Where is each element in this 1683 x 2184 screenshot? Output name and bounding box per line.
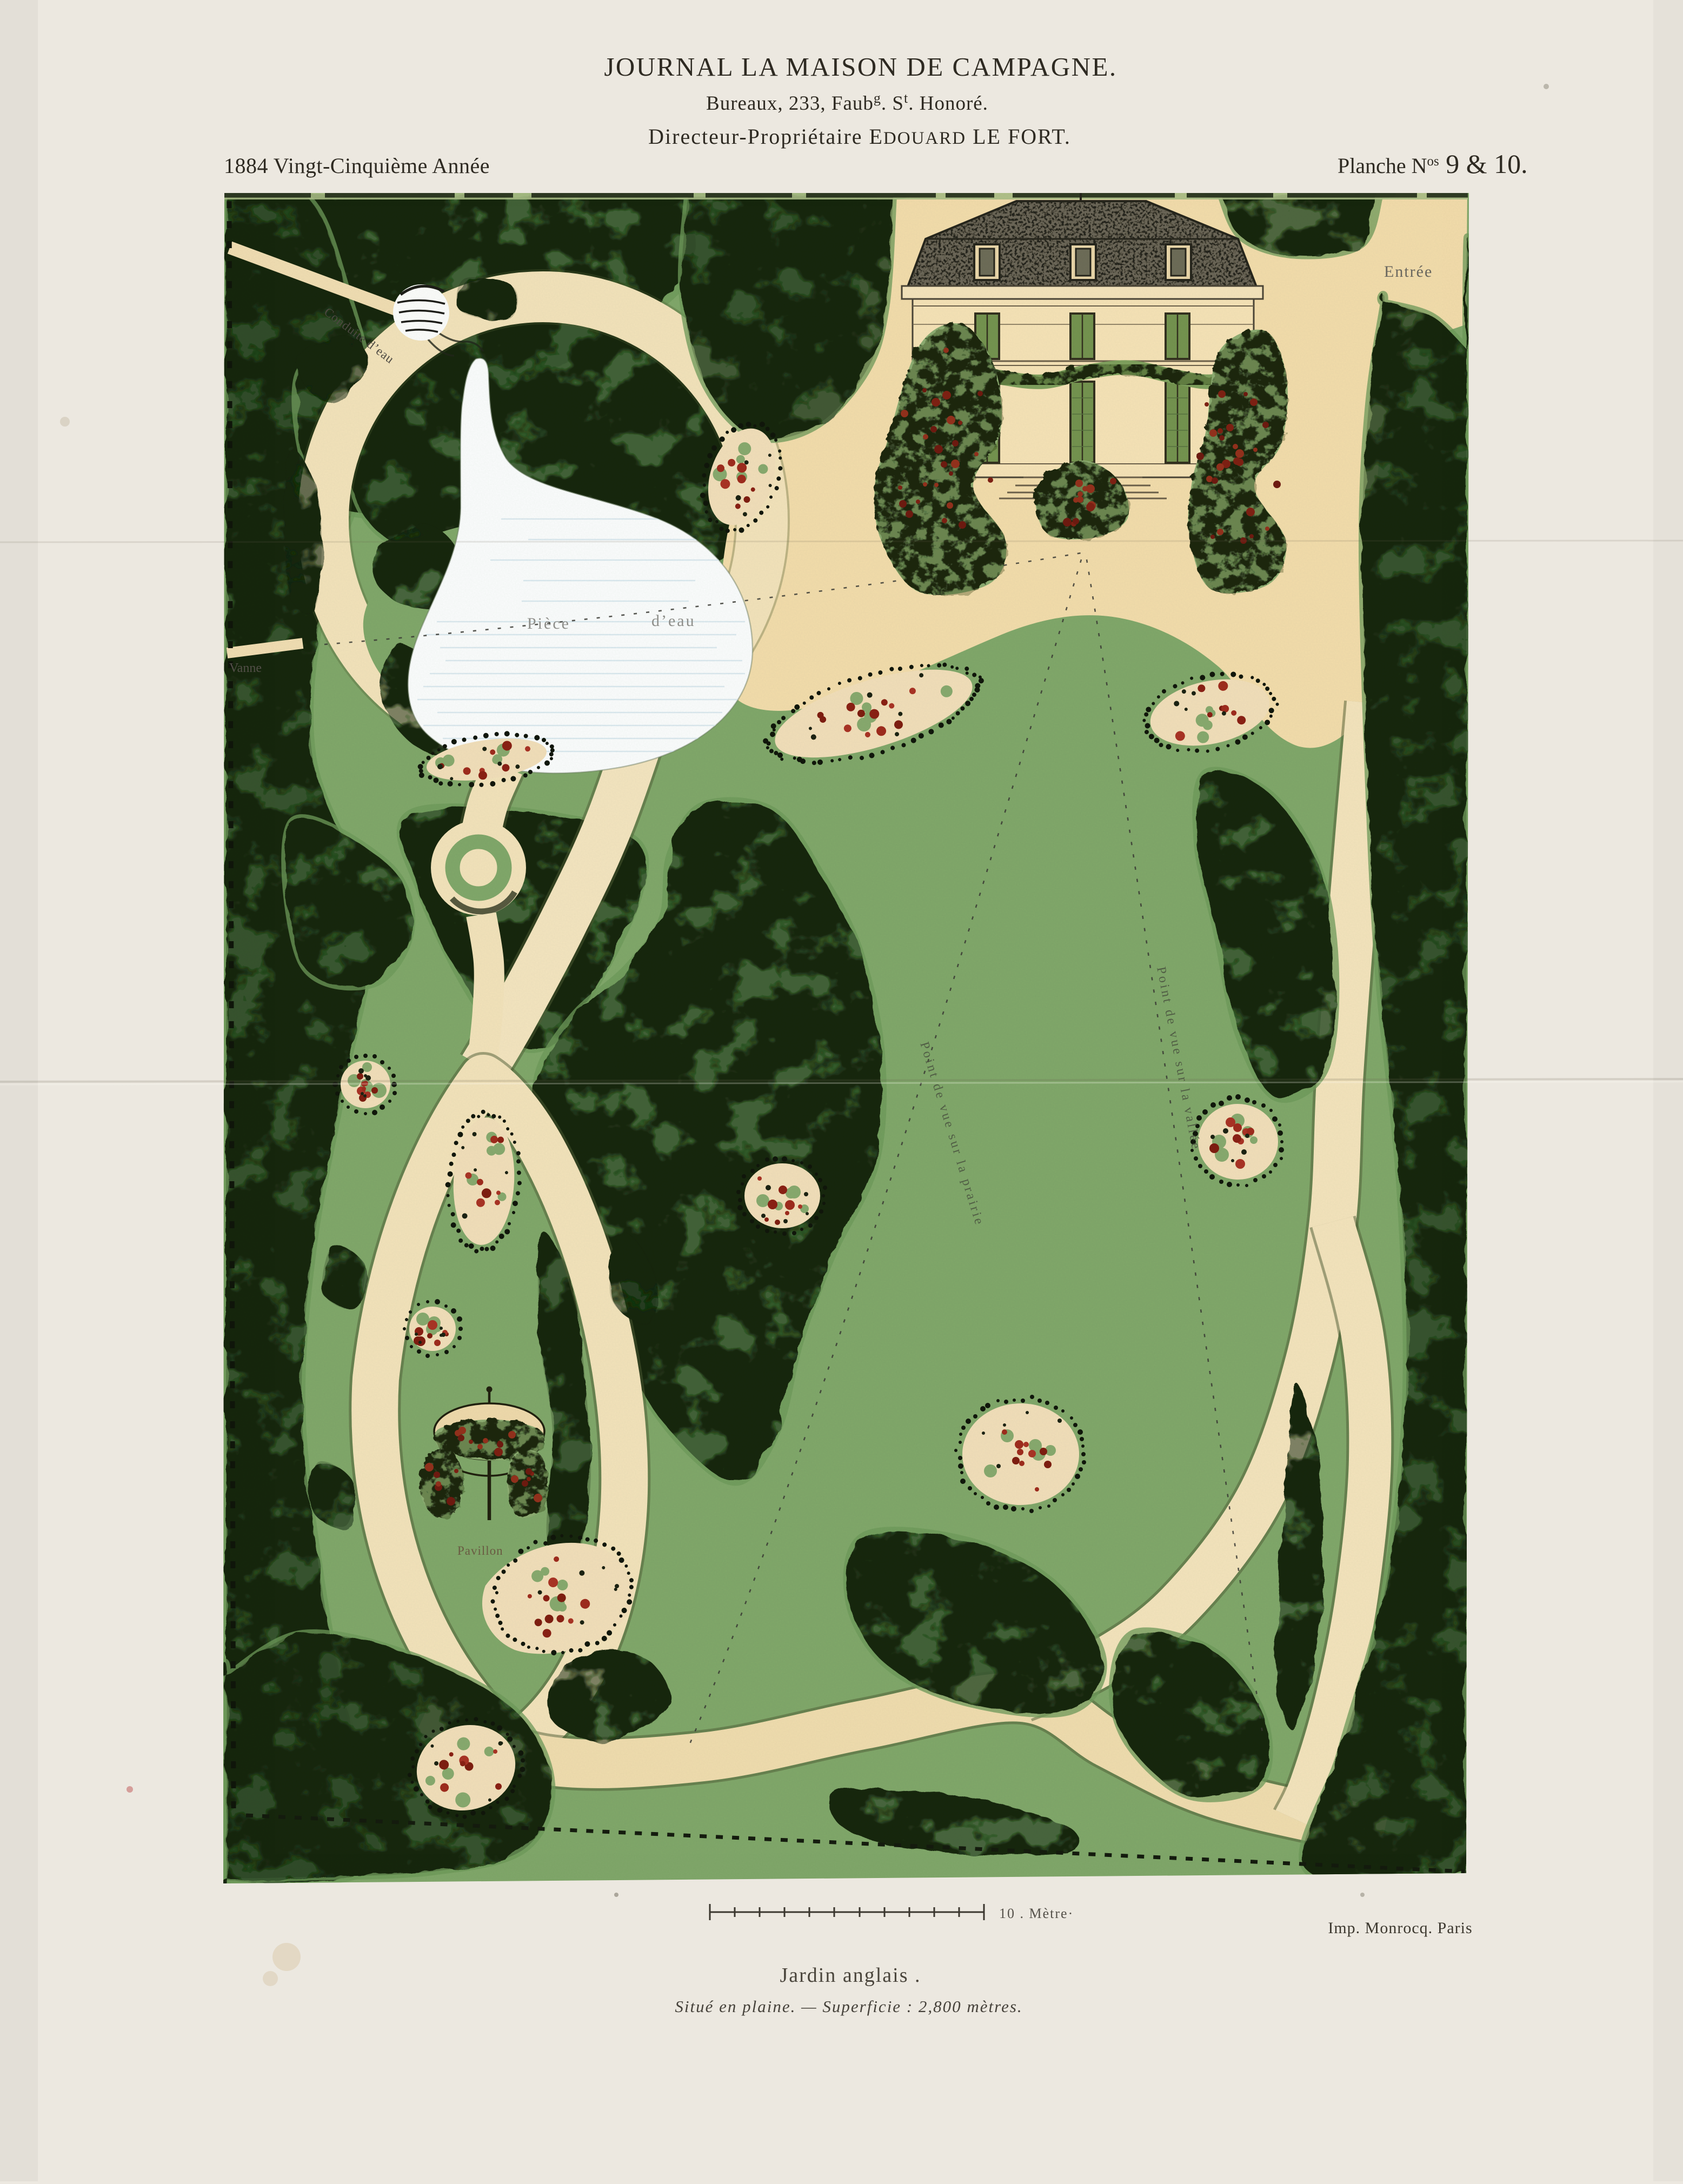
svg-text:JOURNAL LA MAISON DE CAMPAGNE.: JOURNAL LA MAISON DE CAMPAGNE. <box>604 52 1117 82</box>
svg-text:Jardin anglais .: Jardin anglais . <box>780 1964 921 1987</box>
svg-text:1884 Vingt-Cinquième Année: 1884 Vingt-Cinquième Année <box>224 154 490 178</box>
svg-text:Directeur-Propriétaire EDOUARD: Directeur-Propriétaire EDOUARD LE FORT. <box>648 124 1071 149</box>
svg-text:10 . Mètre·: 10 . Mètre· <box>999 1906 1074 1921</box>
svg-text:Bureaux, 233, Faubg. St. Honor: Bureaux, 233, Faubg. St. Honoré. <box>706 90 988 115</box>
svg-text:Situé en plaine. — Superficie: Situé en plaine. — Superficie : 2,800 mè… <box>675 1997 1022 2016</box>
svg-text:Imp. Monrocq. Paris: Imp. Monrocq. Paris <box>1328 1919 1472 1937</box>
